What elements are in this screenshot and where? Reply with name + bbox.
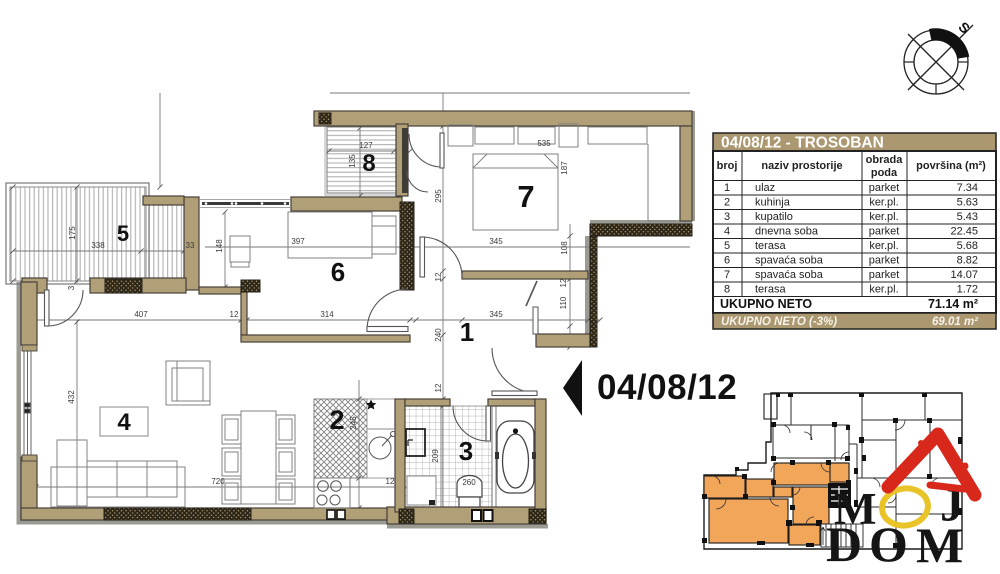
svg-text:8: 8	[724, 284, 730, 296]
svg-text:7: 7	[724, 269, 730, 281]
svg-text:4: 4	[117, 409, 131, 436]
svg-text:kupatilo: kupatilo	[755, 211, 793, 223]
svg-text:71.14 m²: 71.14 m²	[928, 297, 978, 311]
svg-text:3: 3	[724, 211, 730, 223]
svg-text:187: 187	[560, 161, 569, 175]
svg-text:5.43: 5.43	[957, 211, 978, 223]
svg-text:148: 148	[215, 239, 224, 253]
svg-text:14.07: 14.07	[950, 269, 978, 281]
svg-text:7.34: 7.34	[957, 182, 978, 194]
svg-text:poda: poda	[871, 167, 898, 179]
svg-text:338: 338	[91, 241, 105, 250]
svg-text:314: 314	[320, 310, 334, 319]
svg-text:245: 245	[349, 416, 358, 430]
svg-text:spavaća soba: spavaća soba	[755, 255, 824, 267]
svg-text:720: 720	[211, 477, 225, 486]
svg-text:terasa: terasa	[755, 284, 786, 296]
svg-text:ulaz: ulaz	[755, 182, 775, 194]
svg-text:127: 127	[359, 141, 373, 150]
svg-text:345: 345	[489, 310, 503, 319]
svg-text:1: 1	[724, 182, 730, 194]
svg-text:12: 12	[434, 383, 443, 392]
svg-text:UKUPNO NETO: UKUPNO NETO	[720, 297, 812, 311]
svg-text:110: 110	[559, 296, 568, 309]
svg-text:12: 12	[434, 272, 443, 281]
svg-text:ker.pl.: ker.pl.	[869, 284, 898, 296]
svg-text:broj: broj	[717, 160, 738, 172]
svg-text:108: 108	[560, 241, 569, 255]
svg-text:D: D	[826, 516, 862, 572]
svg-text:kuhinja: kuhinja	[755, 197, 791, 209]
svg-text:M: M	[916, 517, 963, 573]
svg-text:ker.pl.: ker.pl.	[869, 211, 898, 223]
svg-text:04/08/12 - TROSOBAN: 04/08/12 - TROSOBAN	[721, 135, 884, 152]
svg-text:4: 4	[724, 226, 730, 238]
svg-text:parket: parket	[869, 226, 900, 238]
svg-text:397: 397	[291, 237, 305, 246]
svg-text:2: 2	[329, 405, 344, 435]
svg-text:69.01 m²: 69.01 m²	[932, 316, 979, 328]
svg-text:UKUPNO NETO (-3%): UKUPNO NETO (-3%)	[721, 316, 837, 328]
svg-text:04/08/12: 04/08/12	[597, 368, 737, 407]
svg-text:obrada: obrada	[866, 154, 904, 166]
svg-text:1: 1	[460, 317, 474, 347]
svg-text:209: 209	[431, 449, 440, 463]
svg-text:parket: parket	[869, 269, 900, 281]
svg-text:7: 7	[517, 179, 534, 214]
svg-text:3: 3	[459, 436, 473, 466]
svg-text:3: 3	[403, 141, 408, 150]
svg-text:295: 295	[434, 189, 443, 203]
svg-text:407: 407	[134, 310, 148, 319]
svg-text:dnevna soba: dnevna soba	[755, 226, 819, 238]
svg-text:parket: parket	[869, 182, 900, 194]
svg-text:5: 5	[724, 240, 730, 252]
svg-text:12: 12	[559, 278, 568, 287]
svg-text:432: 432	[67, 390, 76, 404]
svg-text:spavaća soba: spavaća soba	[755, 269, 824, 281]
svg-text:12: 12	[386, 477, 395, 486]
svg-text:135: 135	[348, 154, 357, 168]
svg-text:12: 12	[230, 310, 239, 319]
svg-text:5.63: 5.63	[957, 197, 978, 209]
svg-text:1.72: 1.72	[957, 284, 978, 296]
svg-text:6: 6	[331, 257, 345, 287]
svg-text:5.68: 5.68	[957, 240, 978, 252]
svg-text:8.82: 8.82	[957, 255, 978, 267]
svg-text:ker.pl.: ker.pl.	[869, 240, 898, 252]
svg-text:naziv prostorije: naziv prostorije	[761, 160, 842, 172]
svg-text:terasa: terasa	[755, 240, 786, 252]
svg-text:6: 6	[724, 255, 730, 267]
svg-text:ker.pl.: ker.pl.	[869, 197, 898, 209]
svg-text:260: 260	[462, 478, 476, 487]
svg-text:345: 345	[489, 237, 503, 246]
svg-text:535: 535	[537, 139, 551, 148]
svg-text:2: 2	[724, 197, 730, 209]
svg-text:22.45: 22.45	[950, 226, 978, 238]
svg-text:parket: parket	[869, 255, 900, 267]
svg-text:240: 240	[434, 328, 443, 342]
svg-text:175: 175	[68, 226, 77, 240]
svg-text:5: 5	[117, 221, 129, 246]
svg-text:33: 33	[186, 241, 195, 250]
svg-text:3: 3	[67, 285, 76, 290]
svg-text:površina (m²): površina (m²)	[916, 160, 986, 172]
svg-text:8: 8	[362, 150, 375, 177]
